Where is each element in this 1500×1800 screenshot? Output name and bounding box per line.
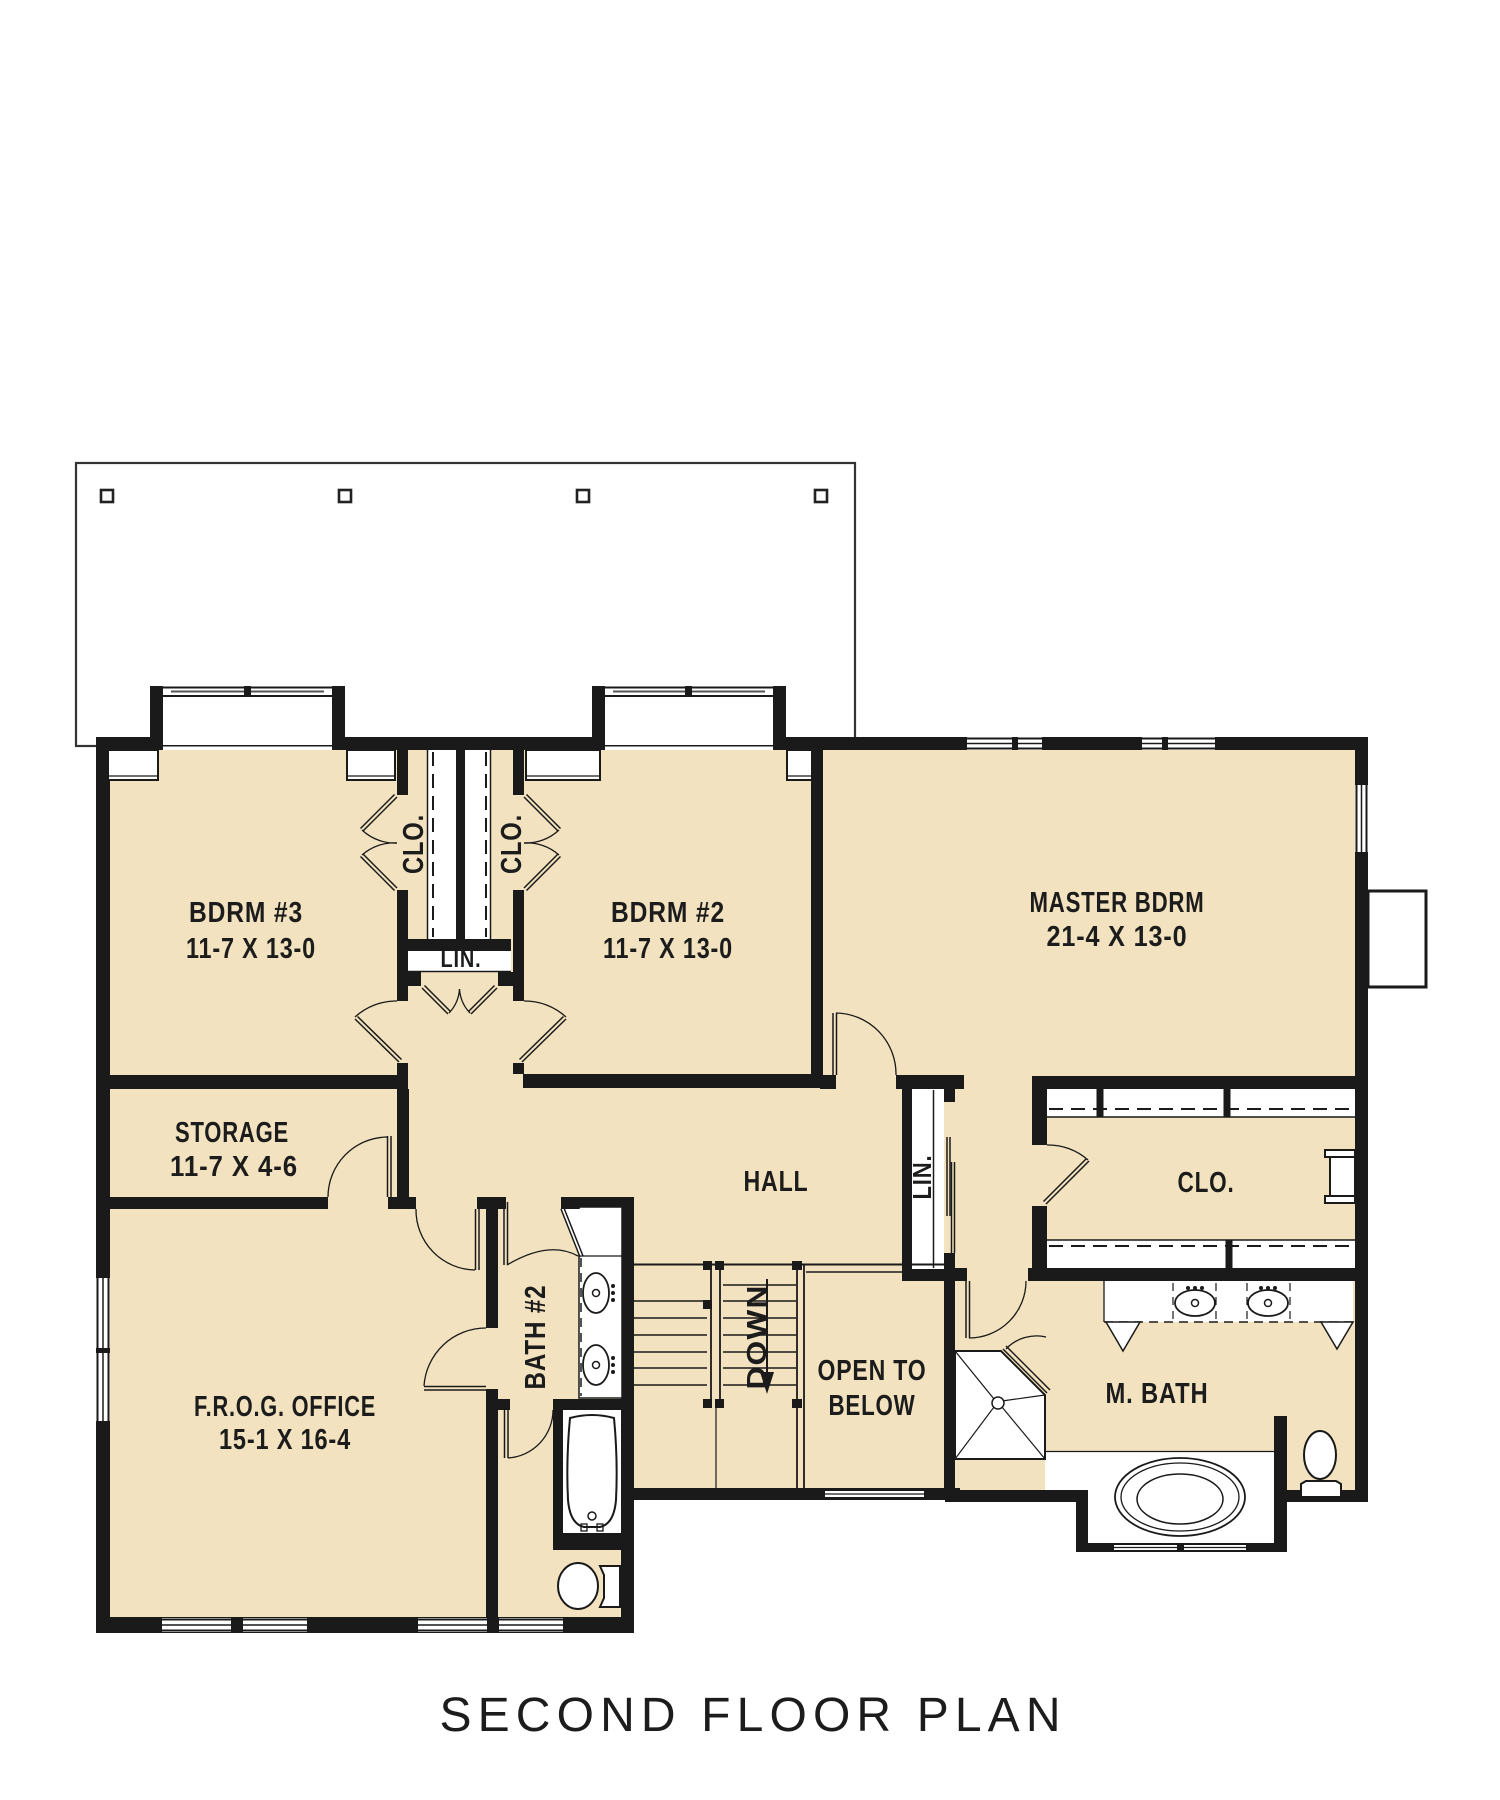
svg-text:15-1 X 16-4: 15-1 X 16-4 [219, 1424, 351, 1456]
svg-text:OPEN TO: OPEN TO [818, 1355, 927, 1387]
svg-text:MASTER BDRM: MASTER BDRM [1030, 887, 1205, 919]
svg-text:CLO.: CLO. [496, 814, 528, 874]
svg-text:DOWN: DOWN [741, 1285, 772, 1390]
svg-text:BATH #2: BATH #2 [520, 1285, 552, 1390]
svg-text:BELOW: BELOW [829, 1390, 916, 1422]
svg-text:M. BATH: M. BATH [1106, 1378, 1209, 1410]
svg-text:CLO.: CLO. [398, 814, 430, 874]
svg-text:F.R.O.G. OFFICE: F.R.O.G. OFFICE [194, 1391, 376, 1423]
svg-text:21-4 X 13-0: 21-4 X 13-0 [1047, 921, 1188, 953]
svg-text:STORAGE: STORAGE [175, 1117, 289, 1149]
svg-text:BDRM #3: BDRM #3 [189, 897, 303, 929]
svg-text:11-7 X 4-6: 11-7 X 4-6 [170, 1151, 298, 1183]
svg-text:SECOND FLOOR PLAN: SECOND FLOOR PLAN [440, 1689, 1061, 1742]
svg-text:LIN.: LIN. [441, 946, 482, 973]
svg-text:CLO.: CLO. [1178, 1167, 1235, 1199]
svg-text:11-7 X 13-0: 11-7 X 13-0 [186, 933, 316, 965]
svg-text:11-7 X 13-0: 11-7 X 13-0 [603, 933, 733, 965]
svg-text:BDRM #2: BDRM #2 [611, 897, 725, 929]
svg-text:HALL: HALL [744, 1166, 809, 1198]
svg-text:LIN.: LIN. [907, 1155, 937, 1200]
